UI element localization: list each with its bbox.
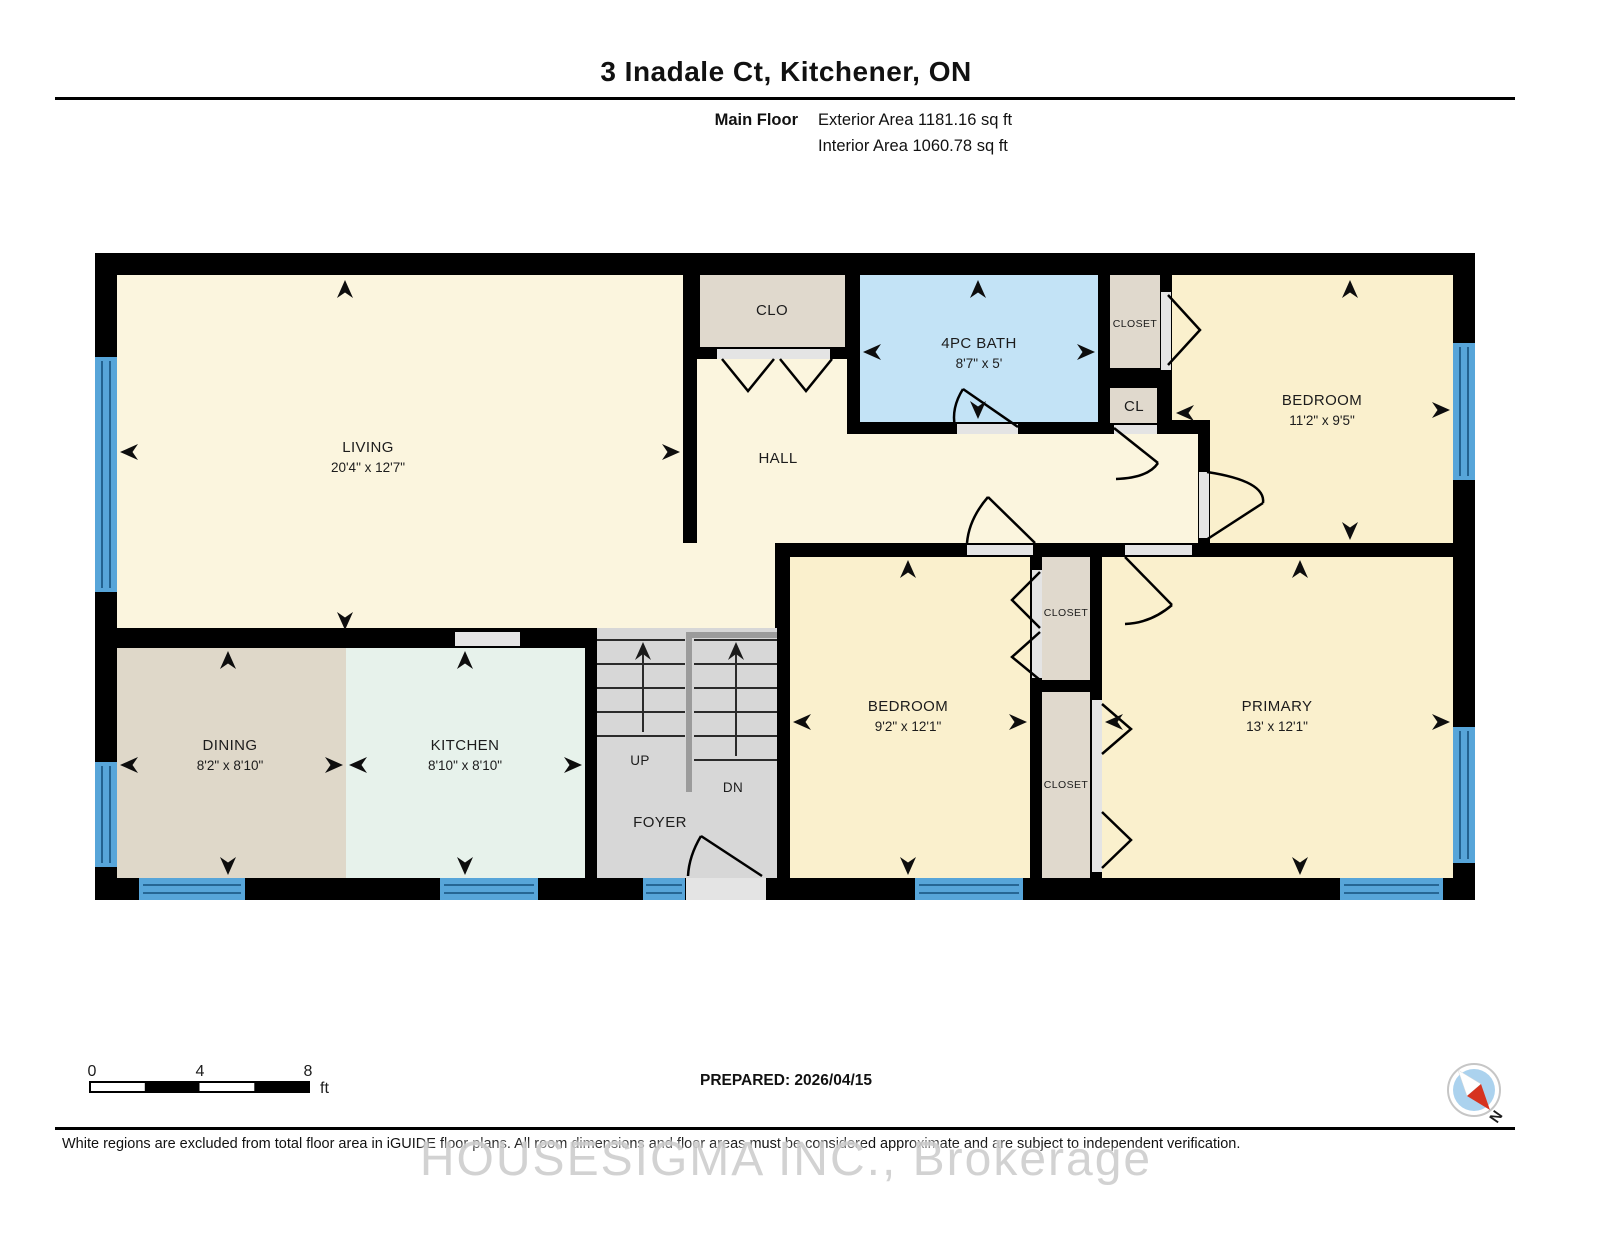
brokerage-watermark: HOUSESIGMA INC., Brokerage — [0, 1132, 1572, 1187]
primary-door-opening — [1125, 545, 1192, 555]
bedroom3-door-opening — [967, 545, 1033, 555]
dims-living: 20'4" x 12'7" — [331, 460, 405, 475]
label-primary: PRIMARY — [1242, 698, 1313, 715]
dims-dining: 8'2" x 8'10" — [197, 758, 264, 773]
footer-divider — [55, 1127, 1515, 1130]
clo-door-opening — [717, 349, 830, 359]
dims-primary: 13' x 12'1" — [1246, 719, 1308, 734]
bedroom2-door-opening — [1199, 472, 1209, 538]
dims-kitchen: 8'10" x 8'10" — [428, 758, 502, 773]
label-foyer: FOYER — [633, 814, 687, 831]
room-hall-left — [697, 359, 847, 434]
label-hall: HALL — [758, 450, 797, 467]
closet-top-door-opening — [1161, 292, 1171, 370]
label-bath: 4PC BATH — [941, 335, 1016, 352]
prepared-date: PREPARED: 2026/04/15 — [0, 1072, 1572, 1090]
room-bedroom2 — [1172, 275, 1453, 543]
dims-bedroom3: 9'2" x 12'1" — [875, 719, 942, 734]
label-cl: CL — [1124, 398, 1144, 415]
dims-bedroom2: 11'2" x 9'5" — [1289, 413, 1355, 428]
room-living — [117, 275, 683, 628]
label-closet-mid-upper: CLOSET — [1044, 607, 1089, 619]
label-kitchen: KITCHEN — [431, 737, 500, 754]
label-closet-mid-lower: CLOSET — [1044, 779, 1089, 791]
front-door-opening — [686, 878, 766, 900]
label-closet-top: CLOSET — [1113, 318, 1158, 330]
room-living-hall-connector — [683, 543, 775, 628]
label-bedroom2: BEDROOM — [1282, 392, 1362, 409]
label-stairs-up: UP — [630, 753, 650, 768]
room-primary — [1102, 557, 1453, 878]
label-dining: DINING — [203, 737, 258, 754]
label-clo: CLO — [756, 302, 788, 319]
floorplan-page: 3 Inadale Ct, Kitchener, ON Main Floor E… — [0, 0, 1600, 1237]
closet-mid-lower-door-opening — [1092, 700, 1102, 872]
floorplan-drawing: LIVING 20'4" x 12'7" CLO 4PC BATH 8'7" x… — [0, 0, 1600, 1237]
label-stairs-dn: DN — [723, 780, 743, 795]
label-living: LIVING — [342, 439, 394, 456]
kitchen-pass-opening — [455, 632, 520, 646]
bath-door-opening — [957, 424, 1018, 434]
dims-bath: 8'7" x 5' — [956, 356, 1003, 371]
label-bedroom3: BEDROOM — [868, 698, 948, 715]
room-bedroom3 — [790, 557, 1030, 878]
